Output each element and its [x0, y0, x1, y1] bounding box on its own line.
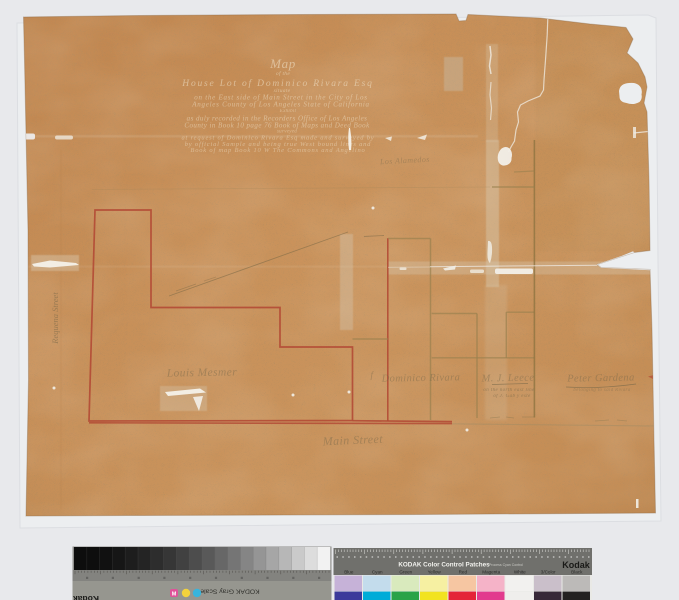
svg-text:Main Street: Main Street — [321, 432, 383, 449]
svg-text:KODAK Color Control Patches: KODAK Color Control Patches — [398, 562, 490, 569]
svg-text:belonging to said Rivara: belonging to said Rivara — [573, 388, 630, 393]
svg-text:Exhibit: Exhibit — [279, 109, 297, 114]
svg-text:Kodak: Kodak — [562, 560, 591, 570]
svg-text:Green: Green — [399, 570, 412, 575]
svg-text:Map: Map — [269, 56, 296, 71]
svg-text:M: M — [172, 592, 177, 598]
svg-text:Book of map Book 10 W The Comm: Book of map Book 10 W The Commons and An… — [190, 147, 365, 154]
svg-text:Louis Mesmer: Louis Mesmer — [166, 366, 238, 379]
svg-text:Requena Street: Requena Street — [50, 292, 60, 345]
svg-text:Dominico Rivara: Dominico Rivara — [381, 372, 461, 384]
svg-text:of J. Gab y este: of J. Gab y este — [493, 394, 531, 399]
svg-text:County in Book 10 page 76 Book: County in Book 10 page 76 Book of Maps a… — [184, 122, 370, 130]
svg-text:Red: Red — [459, 570, 468, 575]
svg-text:3/Color: 3/Color — [541, 570, 556, 575]
svg-text:Magenta: Magenta — [482, 570, 500, 575]
svg-text:Blue: Blue — [344, 570, 354, 575]
svg-text:KODAK Gray Scale: KODAK Gray Scale — [200, 588, 260, 595]
svg-text:Cyan: Cyan — [372, 570, 383, 575]
svg-text:Peter Gardena: Peter Gardena — [566, 372, 635, 384]
svg-text:Kodak: Kodak — [73, 594, 99, 600]
svg-text:on the north east line: on the north east line — [483, 388, 535, 393]
svg-text:Process Cyan Control: Process Cyan Control — [489, 563, 523, 567]
svg-text:Yellow: Yellow — [428, 570, 442, 575]
svg-text:M. J. Leece: M. J. Leece — [480, 373, 534, 385]
svg-text:Angeles County of Los Angeles: Angeles County of Los Angeles State of C… — [191, 101, 370, 109]
svg-text:of the: of the — [276, 70, 290, 77]
svg-text:Black: Black — [571, 570, 583, 575]
svg-text:White: White — [514, 570, 526, 575]
